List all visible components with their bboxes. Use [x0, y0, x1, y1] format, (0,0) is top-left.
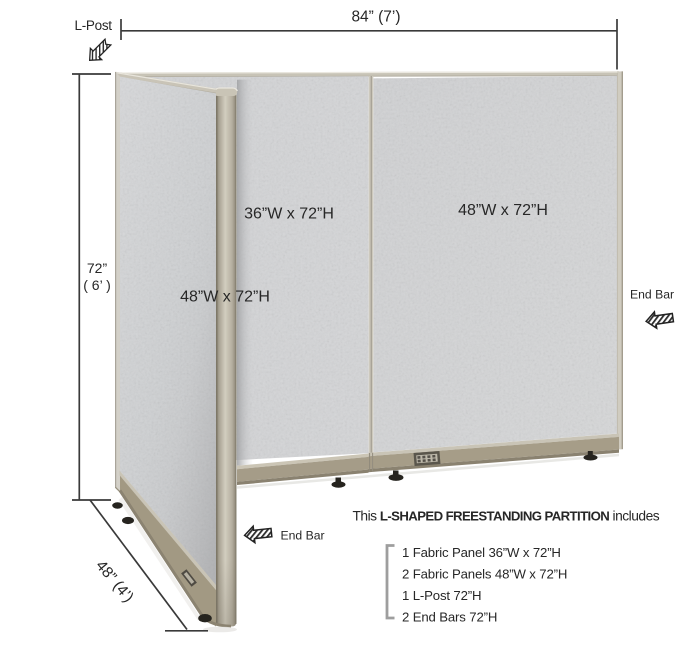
- svg-text:1 L-Post 72”H: 1 L-Post 72”H: [402, 588, 481, 603]
- svg-text:End Bar: End Bar: [281, 529, 325, 543]
- svg-text:2 Fabric Panels 48”W x 72”H: 2 Fabric Panels 48”W x 72”H: [402, 567, 567, 582]
- svg-text:36”W x 72”H: 36”W x 72”H: [244, 206, 334, 223]
- svg-text:72”: 72”: [87, 260, 108, 276]
- svg-text:End Bar: End Bar: [630, 288, 674, 302]
- svg-text:L-Post: L-Post: [75, 18, 113, 33]
- svg-text:This L-SHAPED FREESTANDING PAR: This L-SHAPED FREESTANDING PARTITION inc…: [353, 509, 660, 524]
- svg-text:( 6’ ): ( 6’ ): [83, 277, 110, 293]
- svg-text:1 Fabric Panel 36”W x 72”H: 1 Fabric Panel 36”W x 72”H: [402, 545, 561, 560]
- svg-text:48”W x 72”H: 48”W x 72”H: [180, 289, 270, 306]
- svg-text:2 End Bars 72”H: 2 End Bars 72”H: [402, 610, 497, 625]
- svg-text:84” (7’): 84” (7’): [351, 9, 400, 26]
- svg-text:48”W x 72”H: 48”W x 72”H: [458, 202, 548, 219]
